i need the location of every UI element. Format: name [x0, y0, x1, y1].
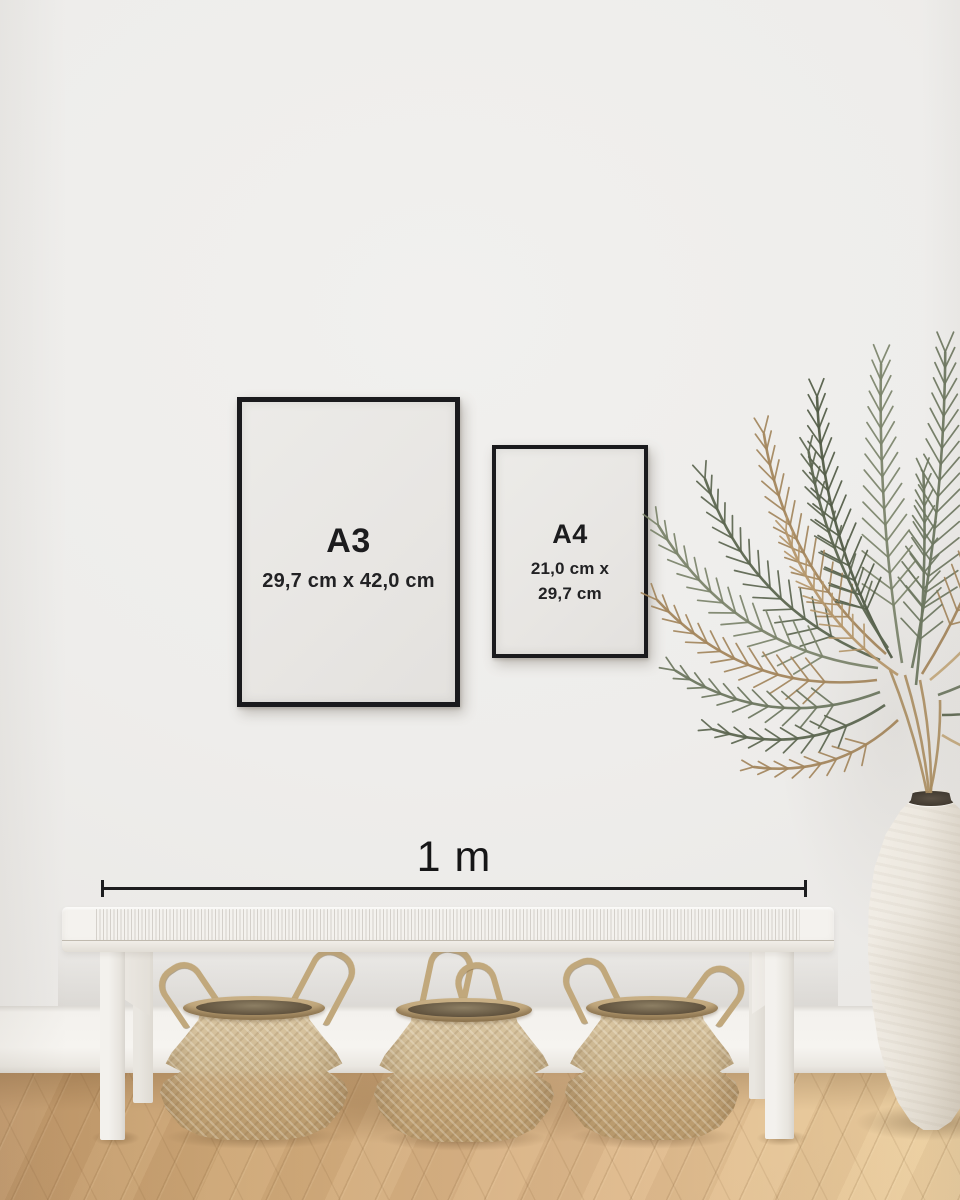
- bench-seat: [62, 907, 834, 952]
- scale-ruler-label: 1 m: [101, 833, 807, 882]
- basket-rim: [183, 996, 325, 1020]
- seagrass-basket-2: [372, 958, 556, 1142]
- frame-a4-paper: A4 21,0 cm x 29,7 cm: [496, 449, 644, 654]
- frame-a4: A4 21,0 cm x 29,7 cm: [492, 445, 648, 658]
- basket-body: [372, 1010, 556, 1142]
- frame-a4-dimensions-line-2: 29,7 cm: [531, 582, 609, 606]
- seagrass-basket-3: [563, 956, 741, 1140]
- frame-a3-size-label: A3: [326, 522, 370, 561]
- dried-palm-plant: [630, 330, 960, 820]
- basket-rim: [396, 998, 532, 1022]
- frame-a3: A3 29,7 cm x 42,0 cm: [237, 397, 460, 707]
- basket-opening: [196, 1000, 313, 1015]
- basket-body: [563, 1008, 741, 1140]
- frame-a4-dimensions-line-1: 21,0 cm x: [531, 557, 609, 581]
- bench-seat-weave: [96, 909, 800, 941]
- frame-a3-dimensions: 29,7 cm x 42,0 cm: [262, 570, 434, 593]
- basket-opening: [408, 1002, 520, 1017]
- bench-leg-front-right: [765, 950, 794, 1139]
- bench-seat-rail: [62, 940, 834, 952]
- seagrass-basket-1: [158, 956, 350, 1140]
- bench-leg-front-left: [100, 950, 125, 1140]
- scale-ruler-tick-left: [101, 880, 104, 897]
- frame-a4-size-label: A4: [552, 519, 588, 550]
- frame-a4-dimensions: 21,0 cm x 29,7 cm: [531, 557, 609, 605]
- frame-a3-paper: A3 29,7 cm x 42,0 cm: [242, 402, 455, 702]
- scale-ruler: 1 m: [101, 880, 807, 898]
- scale-ruler-line: [101, 887, 807, 890]
- room-scene: A3 29,7 cm x 42,0 cm A4 21,0 cm x 29,7 c…: [0, 0, 960, 1200]
- basket-rim: [586, 996, 718, 1020]
- basket-opening: [598, 1000, 706, 1015]
- scale-ruler-tick-right: [804, 880, 807, 897]
